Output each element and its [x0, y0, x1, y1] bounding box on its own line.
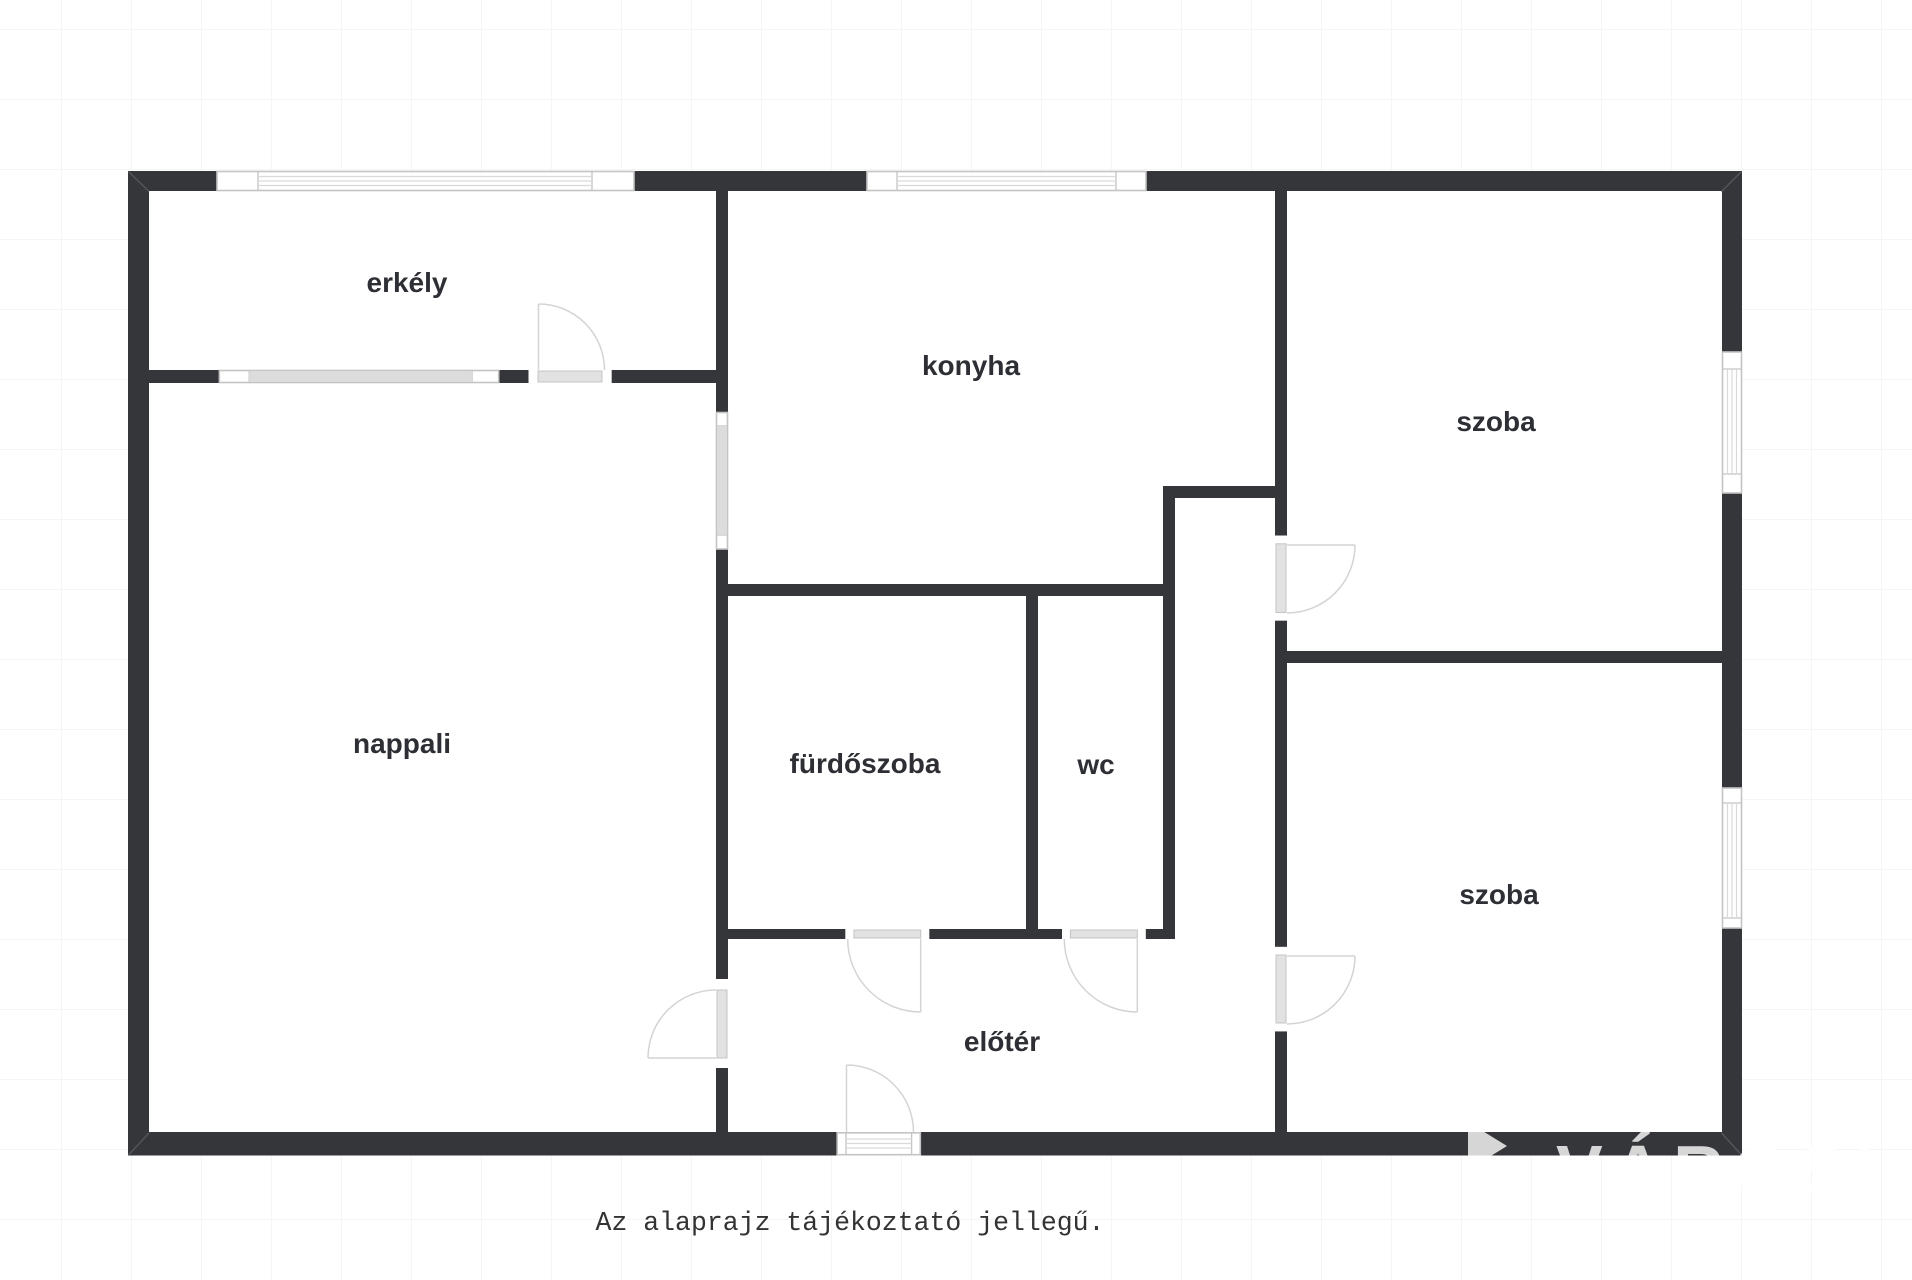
svg-text:wc: wc	[1076, 749, 1114, 780]
svg-text:erkély: erkély	[367, 267, 448, 298]
svg-text:VÁROSI: VÁROSI	[1556, 1131, 1884, 1209]
svg-text:konyha: konyha	[922, 350, 1020, 381]
svg-text:fürdőszoba: fürdőszoba	[790, 748, 941, 779]
svg-text:nappali: nappali	[353, 728, 451, 759]
svg-text:Az alaprajz tájékoztató jelleg: Az alaprajz tájékoztató jellegű.	[596, 1208, 1105, 1238]
svg-text:előtér: előtér	[964, 1026, 1040, 1057]
svg-text:szoba: szoba	[1459, 879, 1539, 910]
svg-text:szoba: szoba	[1456, 406, 1536, 437]
